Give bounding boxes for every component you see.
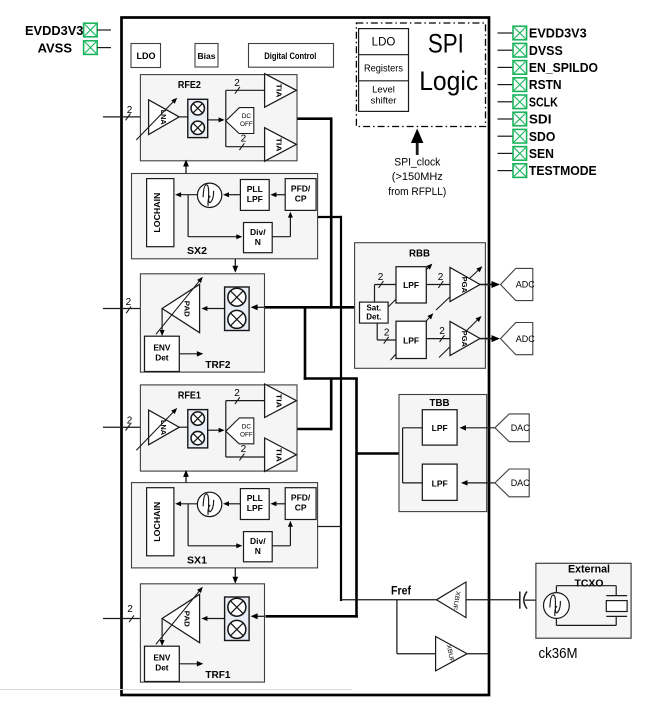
svg-text:RBB: RBB <box>409 247 430 259</box>
svg-text:PGA: PGA <box>460 277 467 293</box>
svg-text:LOCHAIN: LOCHAIN <box>153 192 162 232</box>
svg-text:OFF: OFF <box>240 121 253 128</box>
svg-text:PLL: PLL <box>247 184 263 194</box>
svg-text:Sat.: Sat. <box>366 304 381 313</box>
svg-text:LDO: LDO <box>372 37 396 49</box>
svg-text:LPF: LPF <box>403 280 419 290</box>
svg-text:2: 2 <box>241 444 247 455</box>
svg-text:CP: CP <box>295 194 307 204</box>
svg-text:LNA: LNA <box>159 110 166 125</box>
svg-text:ENV: ENV <box>153 653 171 663</box>
svg-text:Bias: Bias <box>198 51 216 61</box>
svg-text:SCLK: SCLK <box>529 94 558 109</box>
svg-text:TRF1: TRF1 <box>205 669 230 681</box>
svg-text:SEN: SEN <box>529 146 554 161</box>
svg-text:LPF: LPF <box>403 336 419 346</box>
svg-text:DC: DC <box>242 113 252 120</box>
svg-text:LNA: LNA <box>159 420 166 435</box>
svg-text:EVDD3V3: EVDD3V3 <box>25 23 83 38</box>
svg-text:TIA: TIA <box>274 84 281 98</box>
svg-text:Det: Det <box>155 663 169 673</box>
svg-text:DC: DC <box>242 423 252 430</box>
svg-text:N: N <box>255 546 261 556</box>
svg-text:2: 2 <box>241 134 247 145</box>
svg-text:Div/: Div/ <box>250 536 266 546</box>
svg-text:SX2: SX2 <box>187 245 207 257</box>
svg-text:Det: Det <box>155 353 169 363</box>
svg-text:PLL: PLL <box>247 493 263 503</box>
svg-text:EN_SPILDO: EN_SPILDO <box>529 60 598 75</box>
svg-text:PGA: PGA <box>460 331 467 347</box>
svg-text:CP: CP <box>295 503 307 513</box>
svg-text:PAD: PAD <box>182 611 189 627</box>
svg-text:PAD: PAD <box>182 301 189 317</box>
svg-text:from RFPLL): from RFPLL) <box>388 186 446 198</box>
svg-text:ADC: ADC <box>516 334 536 344</box>
svg-text:LDO: LDO <box>137 51 156 61</box>
svg-text:TBB: TBB <box>430 397 450 409</box>
svg-text:SX1: SX1 <box>187 554 207 566</box>
svg-text:SPI: SPI <box>428 28 464 58</box>
svg-text:EVDD3V3: EVDD3V3 <box>529 26 587 41</box>
svg-text:RFE1: RFE1 <box>178 390 201 401</box>
svg-text:ck36M: ck36M <box>539 646 578 662</box>
svg-text:LPF: LPF <box>247 194 263 204</box>
svg-text:N: N <box>255 237 261 247</box>
svg-text:TIA: TIA <box>274 448 281 462</box>
svg-text:Fref: Fref <box>391 586 411 598</box>
svg-text:Level: Level <box>372 85 395 96</box>
svg-text:LPF: LPF <box>247 503 263 513</box>
svg-text:Registers: Registers <box>364 64 403 75</box>
svg-text:AVSS: AVSS <box>38 40 73 55</box>
svg-text:Det.: Det. <box>366 313 381 322</box>
svg-text:RSTN: RSTN <box>529 77 562 92</box>
svg-text:SDI: SDI <box>529 112 552 127</box>
svg-text:SDO: SDO <box>529 129 555 144</box>
svg-text:TRF2: TRF2 <box>205 359 230 371</box>
svg-text:PFD/: PFD/ <box>291 493 311 503</box>
svg-text:TCXO: TCXO <box>575 577 604 589</box>
svg-text:(>150MHz: (>150MHz <box>392 171 443 183</box>
svg-text:ENV: ENV <box>153 343 171 353</box>
svg-text:2: 2 <box>384 328 390 339</box>
svg-text:shifter: shifter <box>371 96 397 107</box>
svg-text:Logic: Logic <box>419 66 478 96</box>
svg-text:RFE2: RFE2 <box>178 80 201 91</box>
svg-text:LPF: LPF <box>432 478 448 488</box>
svg-text:LOCHAIN: LOCHAIN <box>153 501 162 541</box>
svg-text:SPI_clock: SPI_clock <box>394 156 441 168</box>
svg-text:DAC: DAC <box>511 478 531 488</box>
svg-text:Div/: Div/ <box>250 227 266 237</box>
svg-text:DVSS: DVSS <box>529 43 563 58</box>
svg-text:PFD/: PFD/ <box>291 184 311 194</box>
svg-text:OFF: OFF <box>240 431 253 438</box>
svg-text:LPF: LPF <box>432 423 448 433</box>
svg-text:TIA: TIA <box>274 138 281 152</box>
svg-text:External: External <box>568 563 610 575</box>
svg-text:2: 2 <box>127 604 133 615</box>
svg-text:TIA: TIA <box>274 394 281 408</box>
svg-text:DAC: DAC <box>511 423 531 433</box>
svg-text:TESTMODE: TESTMODE <box>529 163 597 178</box>
svg-text:Digital Control: Digital Control <box>264 51 316 62</box>
svg-text:ADC: ADC <box>516 280 536 290</box>
